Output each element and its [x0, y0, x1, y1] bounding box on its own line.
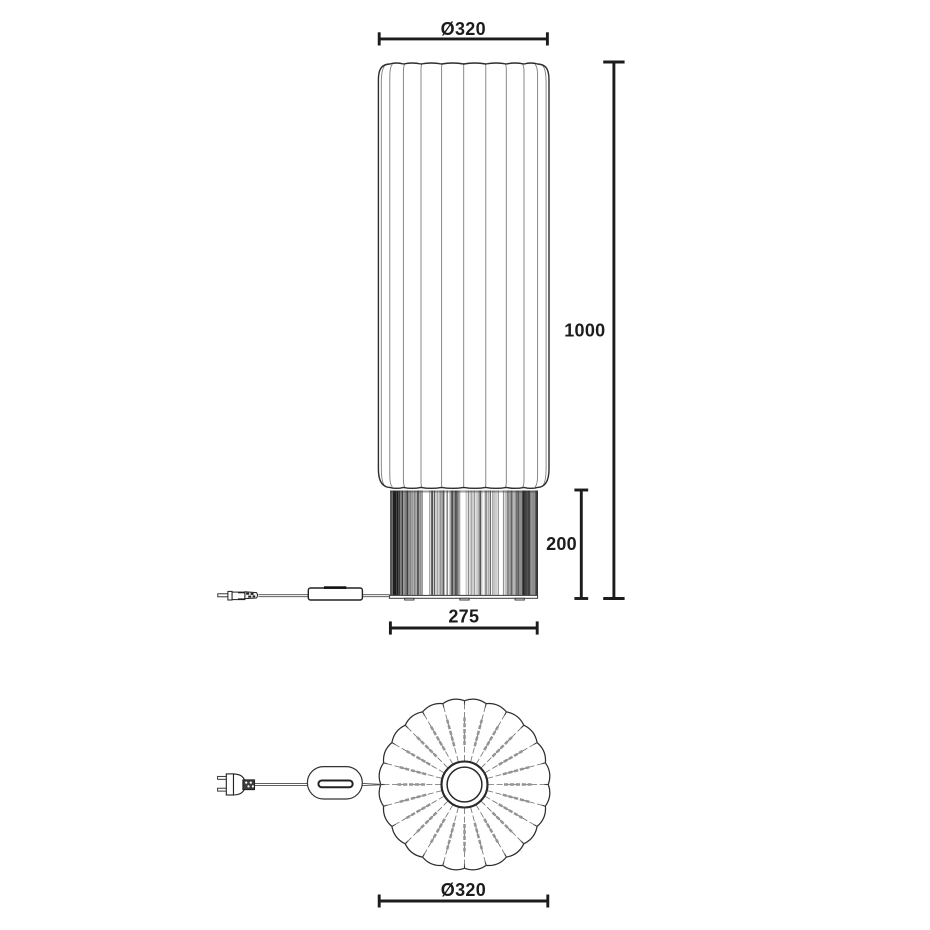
svg-text:1000: 1000: [564, 321, 605, 341]
svg-text:Ø320: Ø320: [441, 19, 486, 39]
svg-text:Ø320: Ø320: [441, 880, 486, 900]
svg-text:200: 200: [546, 534, 577, 554]
svg-text:275: 275: [448, 606, 479, 626]
